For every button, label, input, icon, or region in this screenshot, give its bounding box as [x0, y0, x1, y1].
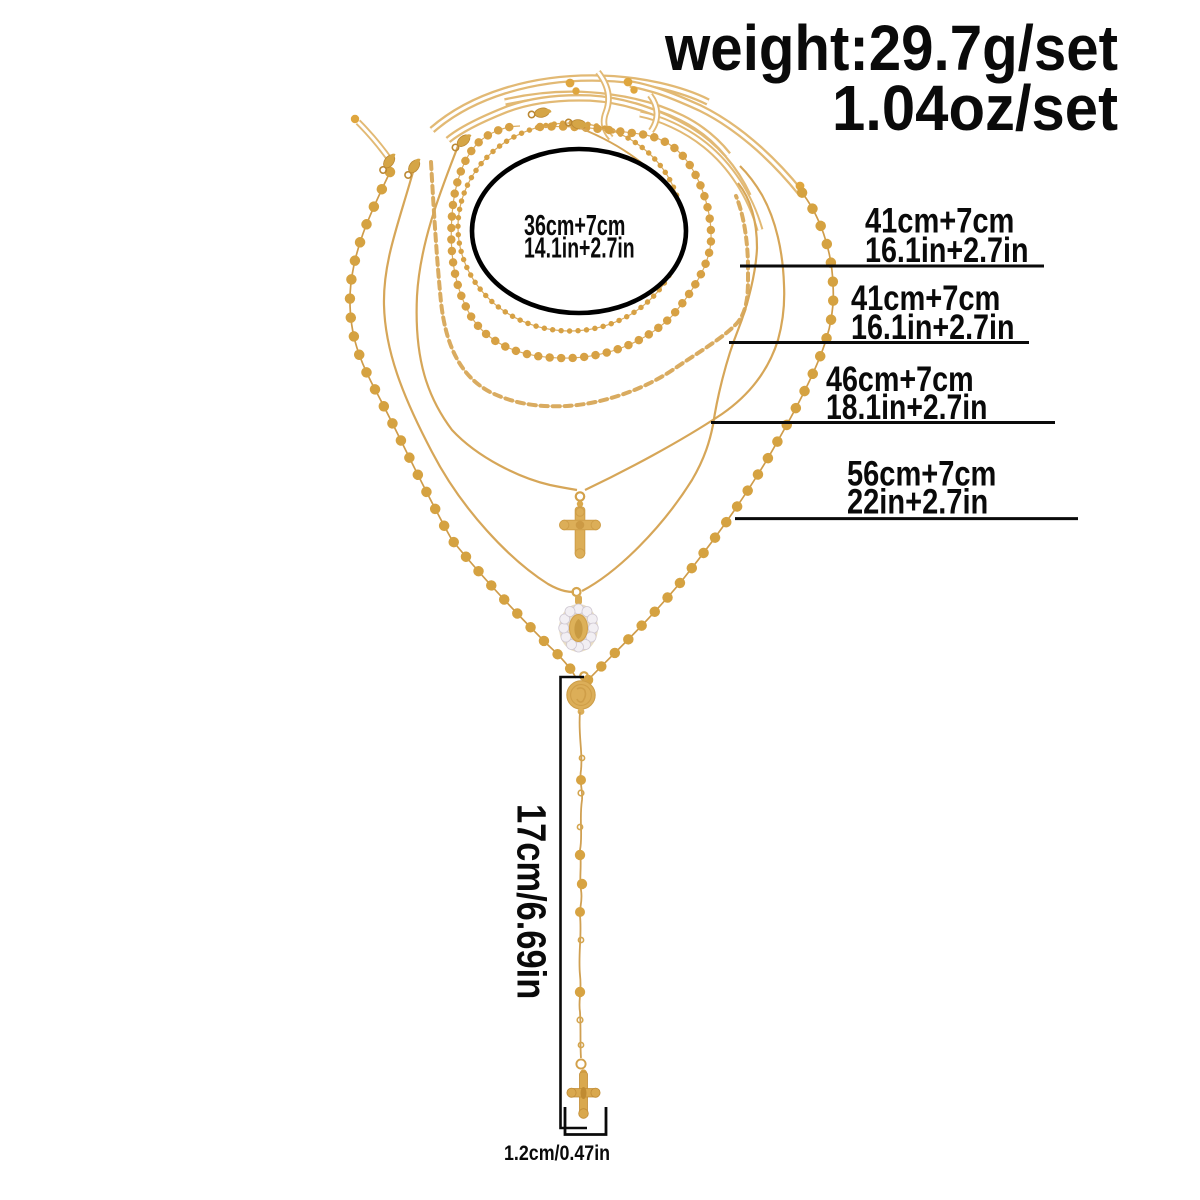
svg-text:16.1in+2.7in: 16.1in+2.7in	[851, 307, 1014, 346]
svg-text:17cm/6.69in: 17cm/6.69in	[508, 804, 553, 999]
svg-text:14.1in+2.7in: 14.1in+2.7in	[524, 233, 635, 265]
svg-text:22in+2.7in: 22in+2.7in	[847, 482, 988, 521]
svg-text:1.2cm/0.47in: 1.2cm/0.47in	[504, 1142, 610, 1166]
svg-text:1.04oz/set: 1.04oz/set	[832, 73, 1118, 144]
svg-text:18.1in+2.7in: 18.1in+2.7in	[826, 387, 987, 427]
svg-text:16.1in+2.7in: 16.1in+2.7in	[865, 230, 1028, 269]
